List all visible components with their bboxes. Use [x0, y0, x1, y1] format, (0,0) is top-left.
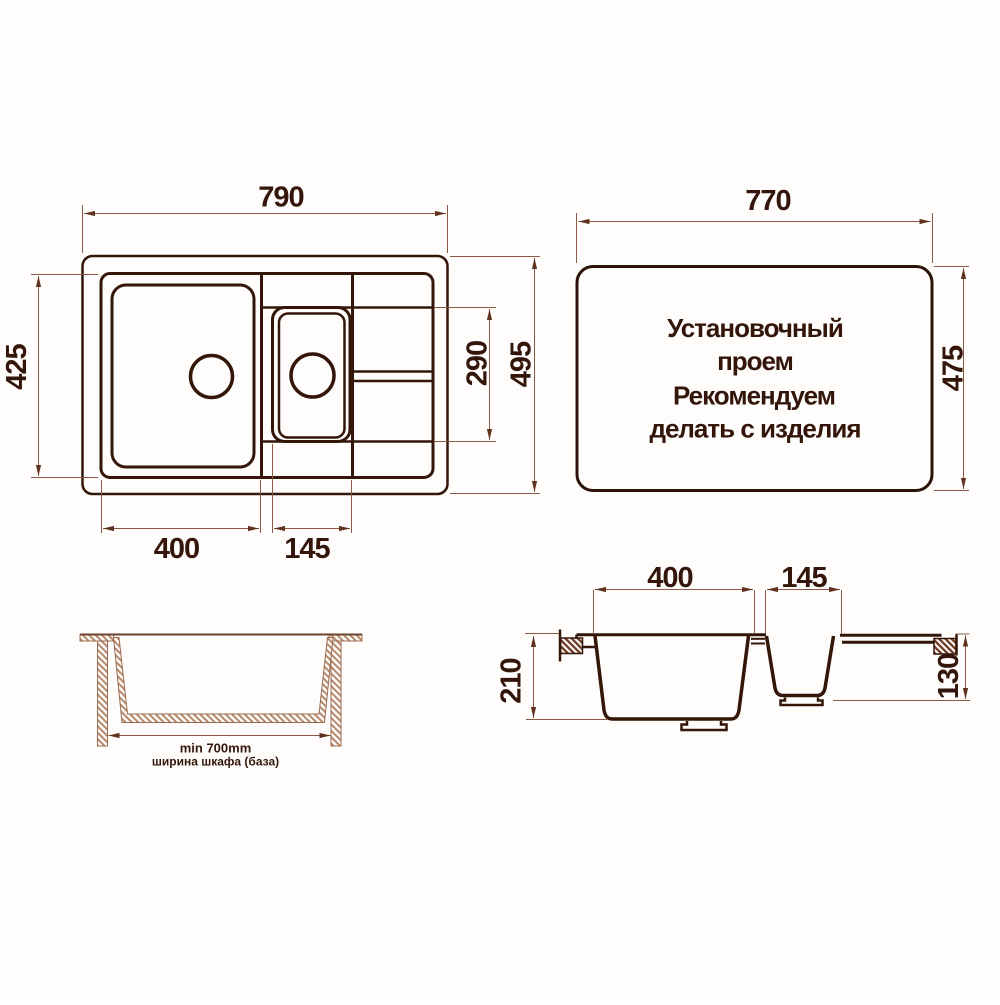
svg-text:делать с изделия: делать с изделия: [649, 414, 860, 444]
svg-text:130: 130: [933, 654, 965, 699]
svg-text:425: 425: [1, 343, 33, 389]
svg-text:770: 770: [745, 185, 790, 217]
svg-text:495: 495: [506, 341, 538, 387]
svg-text:проем: проем: [717, 346, 793, 376]
svg-text:475: 475: [938, 345, 970, 391]
svg-text:ширина шкафа (база): ширина шкафа (база): [152, 755, 279, 769]
svg-text:145: 145: [284, 533, 330, 565]
svg-text:400: 400: [154, 533, 199, 565]
svg-text:210: 210: [496, 658, 528, 703]
svg-text:Установочный: Установочный: [667, 313, 843, 343]
svg-text:290: 290: [462, 341, 494, 386]
svg-text:min 700mm: min 700mm: [180, 741, 252, 756]
svg-text:790: 790: [258, 182, 303, 214]
svg-text:145: 145: [781, 562, 827, 594]
svg-text:Рекомендуем: Рекомендуем: [673, 381, 835, 411]
svg-text:400: 400: [647, 562, 692, 594]
